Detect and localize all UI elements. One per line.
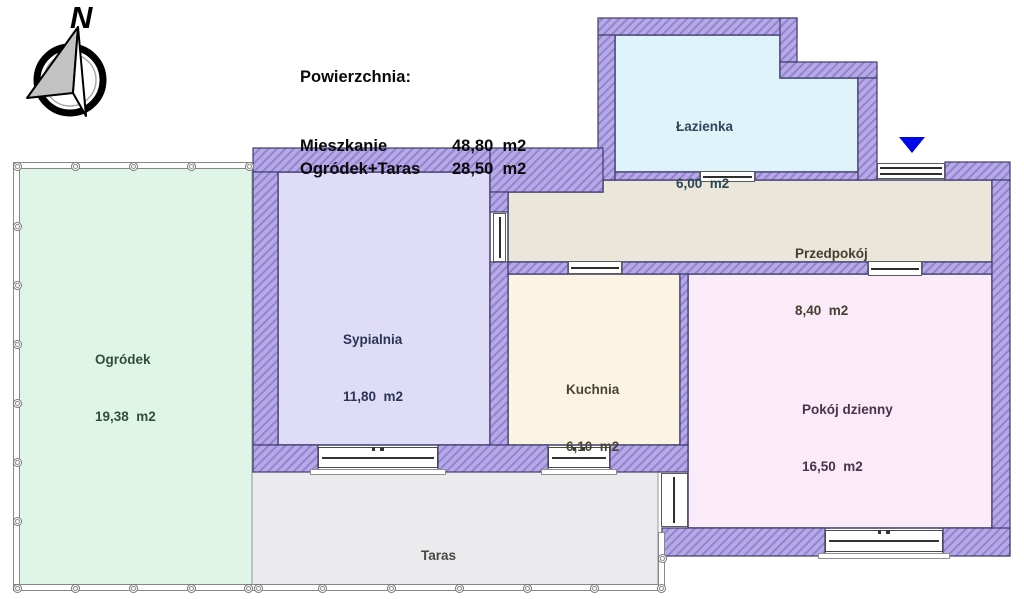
- room-label-lazienka: Łazienka 6,00 m2: [676, 79, 733, 231]
- fence-post: [657, 584, 666, 593]
- room-lazienka-floor: [615, 35, 858, 172]
- wall-segment: [943, 528, 1010, 556]
- wall-segment: [253, 172, 278, 445]
- fence-post: [13, 340, 22, 349]
- summary-row-value: 48,80 m2: [452, 135, 526, 158]
- fence-post: [187, 584, 196, 593]
- fence-post: [13, 399, 22, 408]
- room-name: Łazienka: [676, 117, 733, 136]
- wall-segment: [858, 78, 877, 180]
- wall-segment: [253, 445, 318, 472]
- summary-row-value: 28,50 m2: [452, 158, 526, 181]
- room-name: Przedpokój: [795, 244, 868, 263]
- wall-segment: [438, 445, 548, 472]
- room-label-kuchnia: Kuchnia 6,10 m2: [566, 342, 619, 494]
- room-name: Taras: [421, 546, 474, 565]
- wall-segment: [755, 172, 858, 180]
- fence-post: [71, 162, 80, 171]
- fence-post: [13, 222, 22, 231]
- fence-post: [187, 162, 196, 171]
- wall-segment: [780, 62, 877, 78]
- fence-post: [13, 517, 22, 526]
- door-taras: [661, 473, 688, 527]
- room-name: Kuchnia: [566, 380, 619, 399]
- compass-north-label: N: [70, 0, 93, 35]
- fence-post: [244, 584, 253, 593]
- entrance-marker-icon: [898, 136, 926, 154]
- fence-post: [387, 584, 396, 593]
- fence-post: [523, 584, 532, 593]
- window-sill: [818, 553, 950, 559]
- fence-post: [129, 162, 138, 171]
- window-sill: [310, 469, 446, 475]
- north-arrow-icon: [27, 27, 78, 98]
- wall-segment: [922, 262, 992, 274]
- room-area: 6,00 m2: [676, 174, 733, 193]
- fence-post: [254, 584, 263, 593]
- room-name: Ogródek: [95, 350, 156, 369]
- summary-row-label: Mieszkanie: [300, 135, 452, 158]
- entrance-triangle: [899, 137, 925, 153]
- room-area: 11,80 m2: [343, 387, 403, 406]
- room-label-taras: Taras 9,20 m2: [421, 508, 474, 599]
- room-name: Pokój dzienny: [802, 400, 893, 419]
- door-pokoj-dzienny: [868, 261, 922, 276]
- wall-segment: [610, 445, 688, 472]
- area-summary-title: Powierzchnia:: [300, 66, 526, 89]
- fence-post: [245, 162, 254, 171]
- wall-segment: [490, 262, 508, 445]
- wall-segment: [680, 274, 688, 445]
- door-entrance: [877, 163, 945, 179]
- room-label-ogrodek: Ogródek 19,38 m2: [95, 312, 156, 464]
- window-sypialnia: [318, 447, 438, 468]
- fence-post: [590, 584, 599, 593]
- room-area: 8,40 m2: [795, 301, 868, 320]
- fence-post: [13, 584, 22, 593]
- summary-row-label: Ogródek+Taras: [300, 158, 452, 181]
- fence-post: [13, 281, 22, 290]
- room-label-pokoj-dzienny: Pokój dzienny 16,50 m2: [802, 362, 893, 514]
- room-label-przedpokoj: Przedpokój 8,40 m2: [795, 206, 868, 358]
- wall-segment: [992, 180, 1010, 556]
- fence-post: [658, 554, 667, 563]
- fence-post: [129, 584, 138, 593]
- compass: N: [15, 0, 130, 130]
- room-area: 19,38 m2: [95, 407, 156, 426]
- area-summary: Powierzchnia: Mieszkanie 48,80 m2 Ogróde…: [300, 20, 526, 227]
- floor-plan: Ogródek 19,38 m2 Sypialnia 11,80 m2 Łazi…: [0, 0, 1024, 599]
- fence-post: [318, 584, 327, 593]
- wall-segment: [598, 18, 797, 35]
- room-area: 16,50 m2: [802, 457, 893, 476]
- fence-post: [71, 584, 80, 593]
- fence-rail-bottom: [13, 584, 664, 591]
- window-pokoj-dzienny: [825, 530, 943, 552]
- wall-segment: [780, 18, 797, 62]
- fence-post: [13, 162, 22, 171]
- wall-segment: [662, 528, 825, 556]
- wall-segment: [508, 262, 568, 274]
- fence-post: [13, 458, 22, 467]
- room-label-sypialnia: Sypialnia 11,80 m2: [343, 292, 403, 444]
- room-name: Sypialnia: [343, 330, 403, 349]
- wall-segment: [945, 162, 1010, 180]
- door-kuchnia: [568, 261, 622, 274]
- room-area: 6,10 m2: [566, 437, 619, 456]
